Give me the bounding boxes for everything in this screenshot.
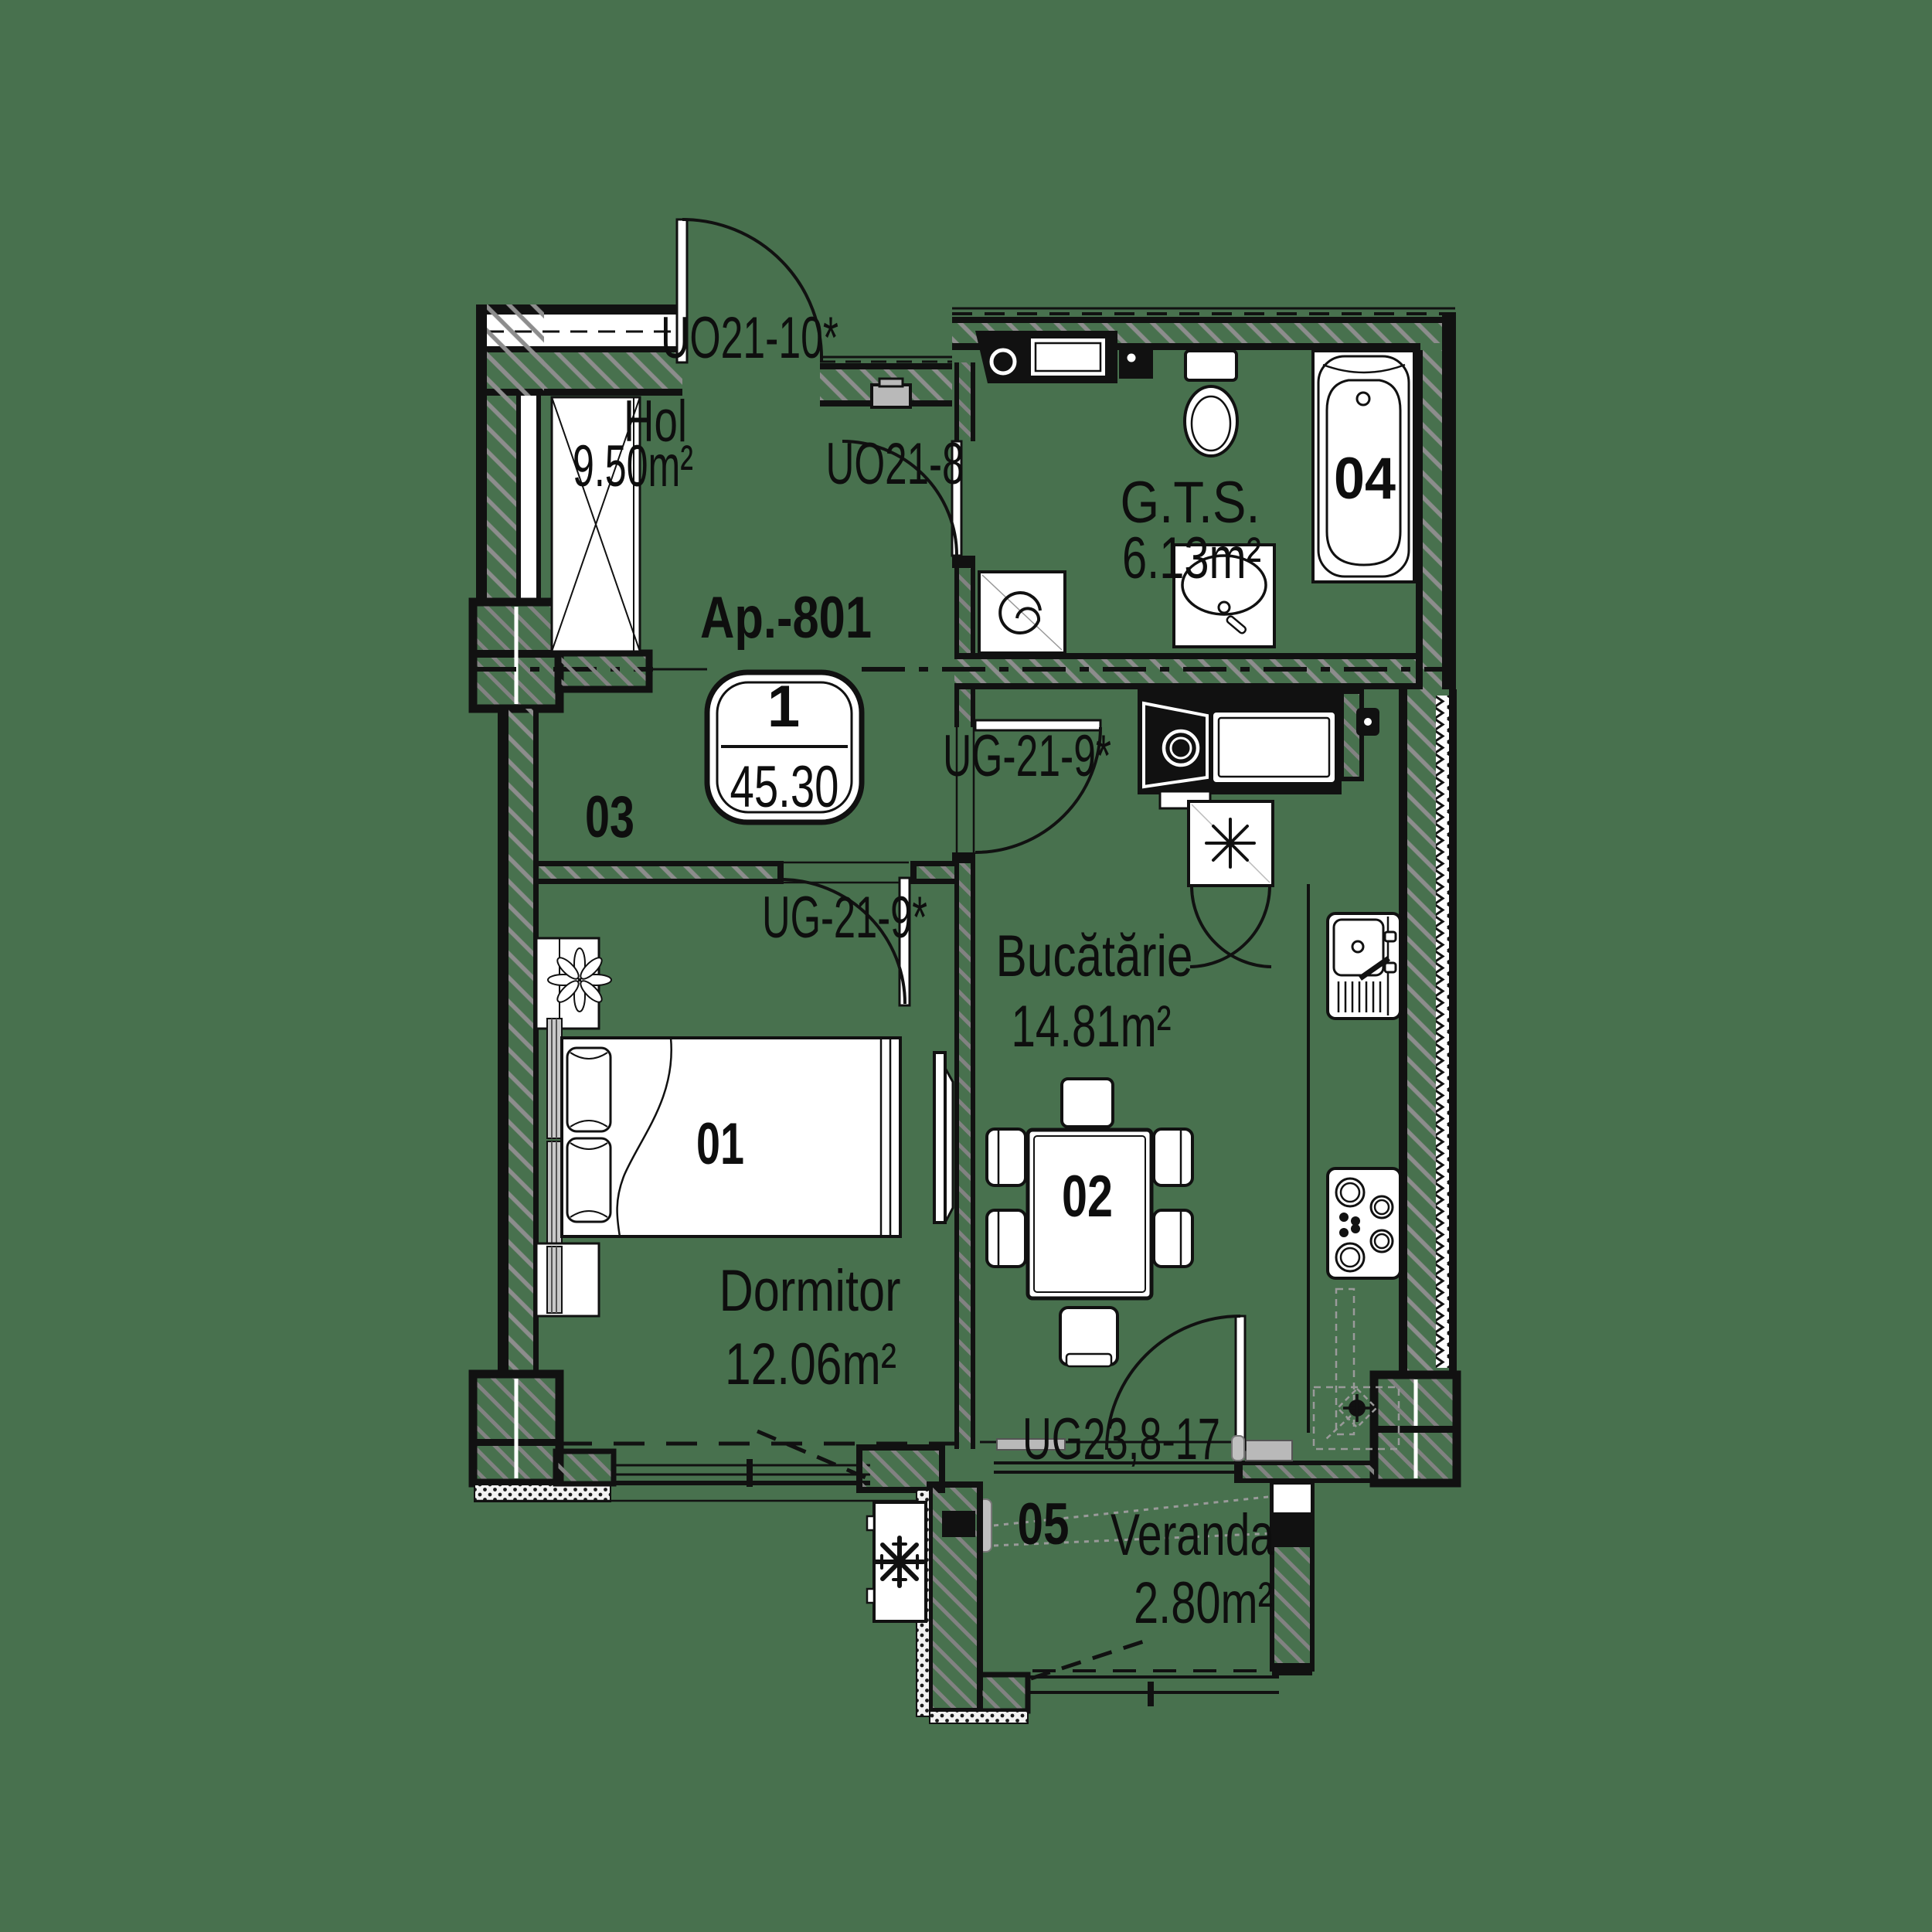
svg-text:01: 01	[696, 1111, 744, 1177]
svg-text:03: 03	[585, 784, 634, 850]
svg-text:UO21-8: UO21-8	[826, 431, 964, 497]
svg-text:6.13m²: 6.13m²	[1122, 526, 1261, 591]
svg-text:1: 1	[767, 674, 800, 740]
svg-text:Bucătărie: Bucătărie	[996, 923, 1193, 989]
svg-text:2.80m²: 2.80m²	[1134, 1570, 1273, 1636]
svg-text:UG-21-9*: UG-21-9*	[943, 723, 1111, 789]
svg-text:14.81m²: 14.81m²	[1012, 994, 1172, 1060]
svg-text:45.30: 45.30	[730, 754, 839, 820]
svg-text:9.50m²: 9.50m²	[573, 434, 693, 499]
svg-text:Veranda: Veranda	[1111, 1502, 1275, 1568]
svg-text:05: 05	[1018, 1492, 1070, 1557]
svg-text:UO21-10*: UO21-10*	[661, 305, 838, 371]
svg-text:UG-21-9*: UG-21-9*	[762, 885, 927, 951]
svg-text:Ap.-801: Ap.-801	[700, 585, 872, 651]
svg-text:12.06m²: 12.06m²	[725, 1332, 896, 1397]
svg-text:02: 02	[1062, 1164, 1113, 1230]
svg-text:04: 04	[1334, 446, 1396, 512]
svg-text:Dormitor: Dormitor	[719, 1258, 901, 1324]
svg-text:UG23,8-17: UG23,8-17	[1022, 1406, 1220, 1472]
